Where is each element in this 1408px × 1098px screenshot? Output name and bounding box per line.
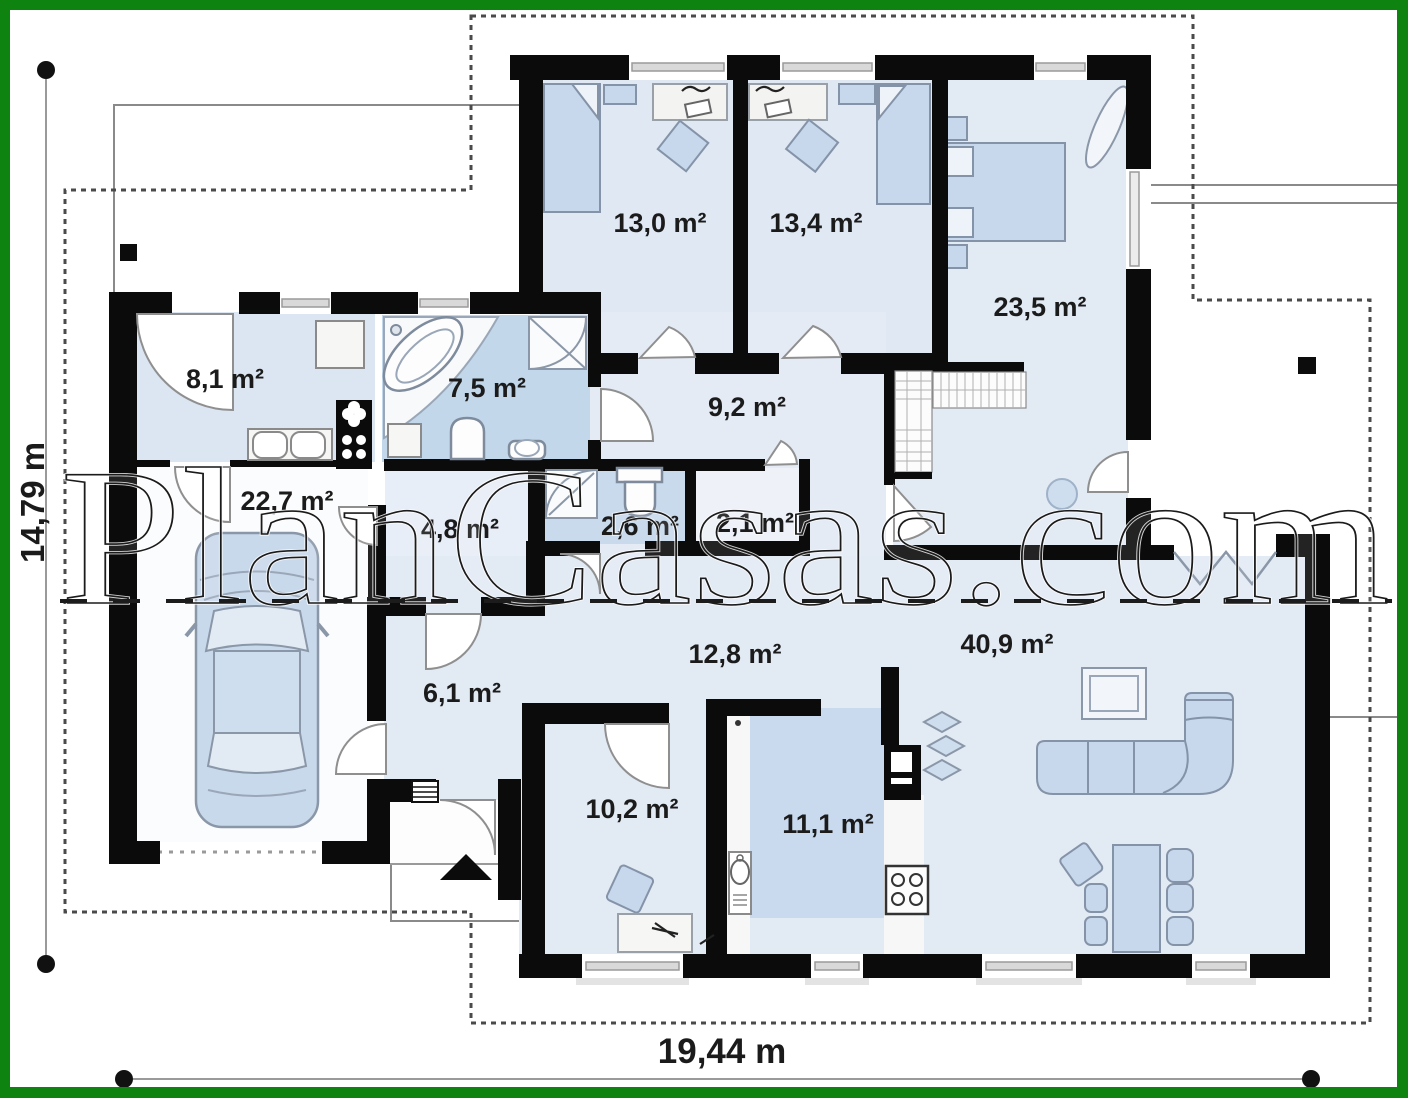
svg-text:19,44 m: 19,44 m <box>658 1032 786 1071</box>
svg-text:11,1 m²: 11,1 m² <box>782 809 874 839</box>
svg-text:13,0 m²: 13,0 m² <box>613 208 706 238</box>
svg-text:8,1 m²: 8,1 m² <box>186 364 264 394</box>
svg-text:6,1 m²: 6,1 m² <box>423 678 501 708</box>
svg-text:13,4 m²: 13,4 m² <box>769 208 862 238</box>
svg-text:7,5 m²: 7,5 m² <box>448 373 526 403</box>
svg-text:23,5 m²: 23,5 m² <box>993 292 1086 322</box>
svg-text:10,2 m²: 10,2 m² <box>585 794 678 824</box>
svg-text:9,2 m²: 9,2 m² <box>708 392 786 422</box>
svg-text:PlanCasas.com: PlanCasas.com <box>60 429 1390 646</box>
svg-text:14,79 m: 14,79 m <box>14 442 51 563</box>
